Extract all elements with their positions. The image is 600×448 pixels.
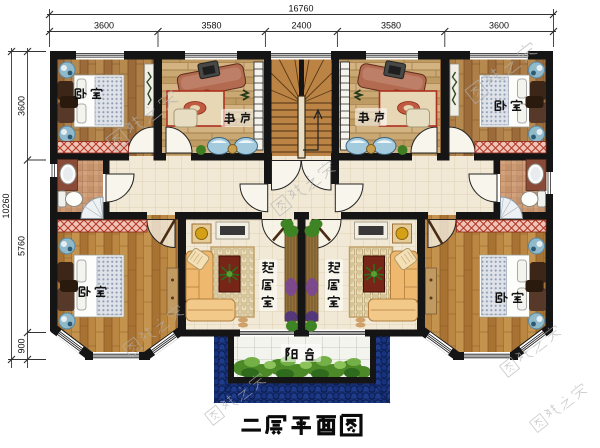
svg-text:900: 900 bbox=[17, 338, 27, 353]
svg-text:2400: 2400 bbox=[291, 21, 311, 31]
svg-text:3600: 3600 bbox=[17, 96, 27, 116]
svg-text:3580: 3580 bbox=[201, 21, 221, 31]
svg-text:3600: 3600 bbox=[94, 21, 114, 31]
svg-text:5760: 5760 bbox=[17, 236, 27, 256]
svg-text:10260: 10260 bbox=[1, 193, 11, 218]
svg-text:3580: 3580 bbox=[381, 21, 401, 31]
svg-text:16760: 16760 bbox=[288, 4, 313, 14]
svg-text:3600: 3600 bbox=[489, 21, 509, 31]
